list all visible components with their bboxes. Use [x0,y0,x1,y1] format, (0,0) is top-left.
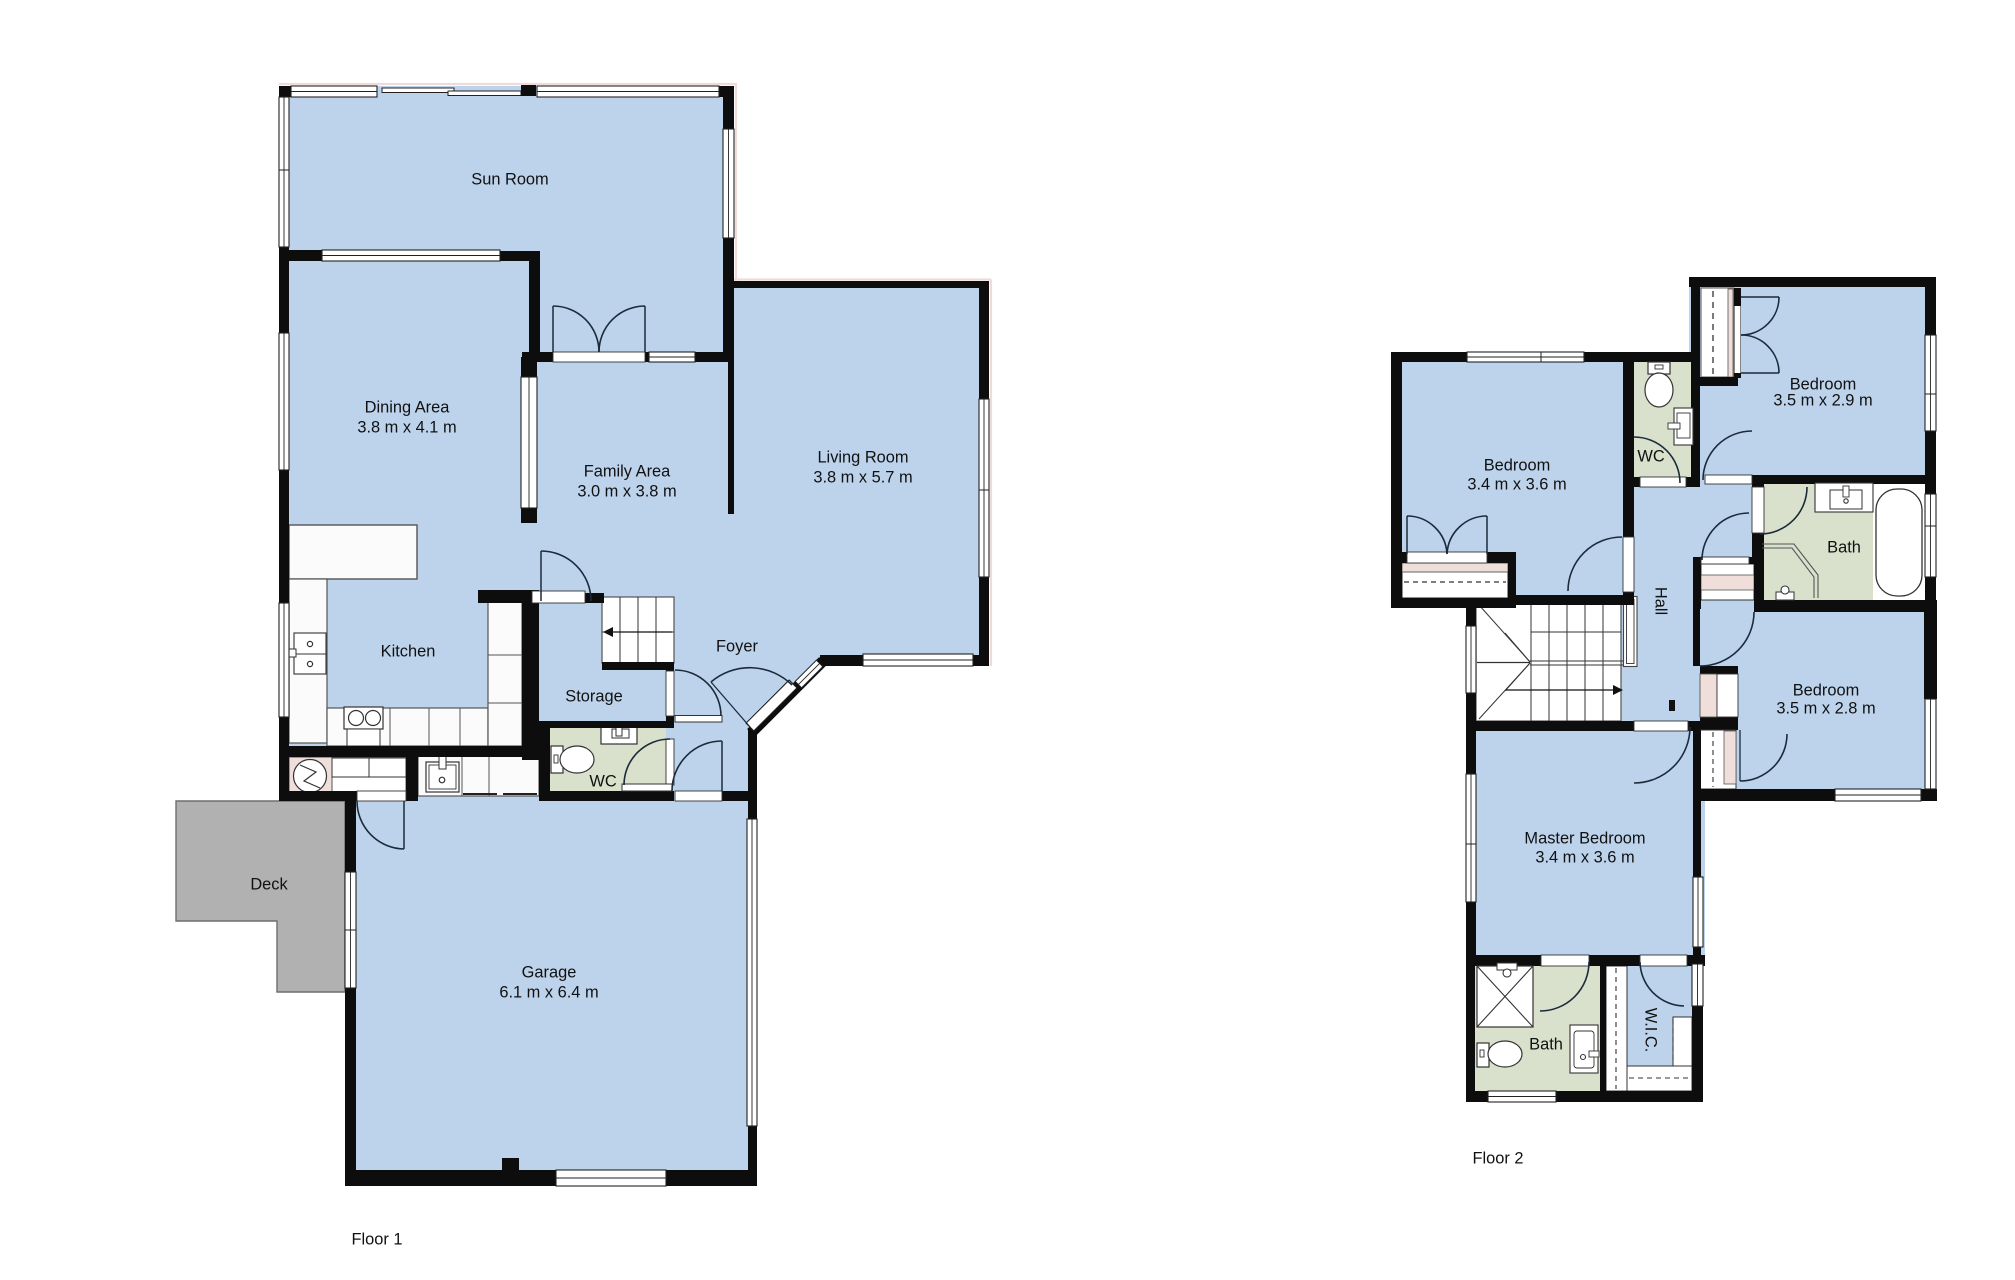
svg-text:Sun Room: Sun Room [471,171,548,189]
svg-text:3.8 m x 5.7 m: 3.8 m x 5.7 m [813,469,912,487]
svg-text:Bedroom: Bedroom [1793,682,1860,700]
svg-text:WC: WC [589,773,616,791]
svg-text:Bedroom: Bedroom [1484,457,1551,475]
svg-text:W.I.C.: W.I.C. [1641,1008,1659,1053]
svg-text:3.5 m x 2.9 m: 3.5 m x 2.9 m [1773,392,1872,410]
svg-text:Floor 2: Floor 2 [1472,1150,1523,1168]
svg-text:Dining Area: Dining Area [365,399,451,417]
svg-text:6.1 m x 6.4 m: 6.1 m x 6.4 m [499,984,598,1002]
svg-text:Storage: Storage [565,688,622,706]
svg-text:3.0 m x 3.8 m: 3.0 m x 3.8 m [577,483,676,501]
svg-text:Master Bedroom: Master Bedroom [1524,830,1645,848]
svg-text:Kitchen: Kitchen [381,643,436,661]
svg-text:3.4 m x 3.6 m: 3.4 m x 3.6 m [1535,849,1634,867]
svg-text:Hall: Hall [1651,587,1669,615]
svg-text:Living Room: Living Room [817,449,908,467]
svg-text:Deck: Deck [250,876,288,894]
svg-text:Bath: Bath [1529,1036,1563,1054]
svg-text:WC: WC [1637,448,1664,466]
svg-text:Family Area: Family Area [584,463,671,481]
svg-text:Foyer: Foyer [716,638,758,656]
svg-text:3.5 m x 2.8 m: 3.5 m x 2.8 m [1776,700,1875,718]
svg-text:Bath: Bath [1827,539,1861,557]
svg-text:3.8 m x 4.1 m: 3.8 m x 4.1 m [357,419,456,437]
svg-text:Floor 1: Floor 1 [351,1231,402,1249]
svg-text:3.4 m x 3.6 m: 3.4 m x 3.6 m [1467,476,1566,494]
svg-text:Garage: Garage [522,964,577,982]
